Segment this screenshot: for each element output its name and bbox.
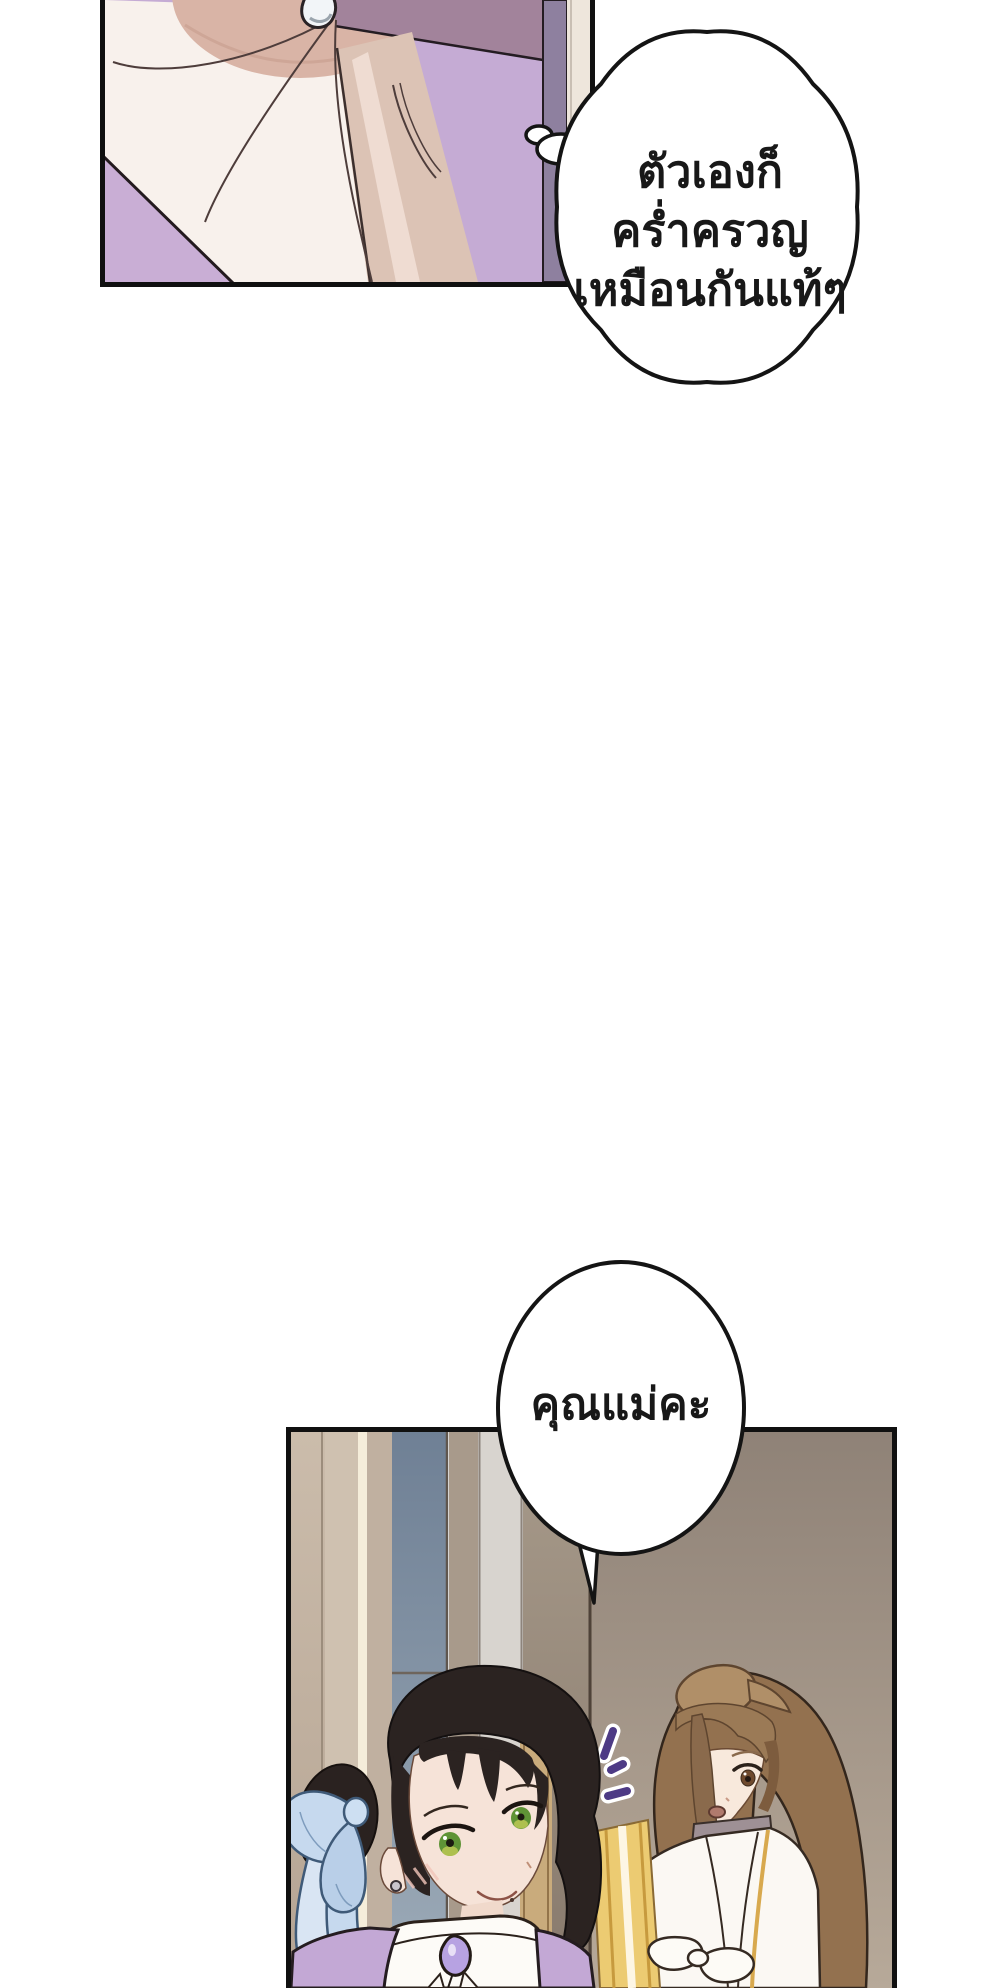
beauty-mark <box>510 1898 514 1902</box>
gold-trim-sleeve <box>592 1820 660 1988</box>
speech-bubble-body <box>498 1262 744 1554</box>
thought-bubble-cloud <box>556 31 857 382</box>
drop-earring <box>302 0 336 28</box>
top-panel <box>103 0 593 285</box>
daughter-mouth <box>709 1807 725 1818</box>
comic-art <box>0 0 1000 1988</box>
stud-earring <box>391 1881 401 1891</box>
comic-page: ตัวเองก็คร่ำครวญ เหมือนกันแท้ๆ คุณแม่คะ <box>0 0 1000 1988</box>
